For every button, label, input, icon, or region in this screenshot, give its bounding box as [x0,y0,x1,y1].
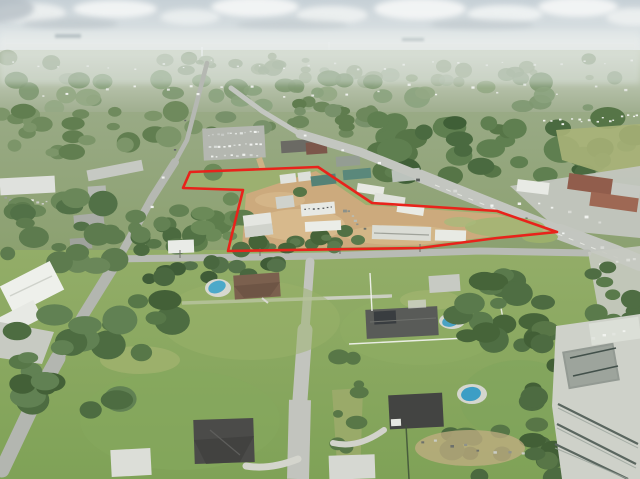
equipment-on-lot [354,220,357,222]
parked-cars [212,134,214,135]
rv-park [636,115,638,117]
tree-cluster [156,126,182,147]
trees-west-of-road [88,191,117,217]
commercial-building [336,155,361,167]
property-trees-west [223,192,239,205]
rv-park [633,116,635,117]
highway-cars [341,149,344,151]
distant-buildings [556,94,558,95]
garage-door [391,419,401,427]
equipment-on-lot [348,210,351,212]
trucks-east [518,203,521,206]
distant-tree-row [75,89,101,106]
hedge-row [153,267,175,286]
equipment-on-lot [352,215,354,217]
trucks-east [551,207,554,209]
equipment-on-lot [343,210,347,213]
yard-equipment [450,445,454,448]
forest-right [415,125,433,140]
yard-equipment [464,444,467,446]
trees-by-substation [526,418,549,432]
parked-cars [240,132,243,134]
trucks-east [568,211,572,214]
rv-park [562,123,565,125]
tree-cluster [117,138,134,153]
trees-west-of-road [19,226,49,248]
parked-cars [244,132,246,133]
road-cars [151,206,154,208]
cloud-shadow [430,19,534,31]
trees-west-of-road [82,258,110,274]
tree-belt-center-left [31,372,60,390]
tree-belt-center-left [131,344,152,361]
highway-cars [601,246,605,249]
equipment-yard [4,197,7,199]
parked-cars [223,146,225,148]
distant-city-silhouette [55,34,81,38]
shed [275,195,294,209]
rv-park [588,119,591,121]
trees-along-street [350,386,369,398]
parked-cars [221,134,224,136]
parked-cars [250,144,253,146]
distant-buildings [496,92,498,94]
highway-cars [416,179,420,182]
forest-right [443,116,466,130]
rv-park [581,121,583,122]
parked-cars [257,131,259,132]
trees-right-edge [605,289,620,300]
trees-near-property-west [125,210,146,224]
hedge-row [203,255,219,269]
patio [408,300,426,309]
rv-park [578,119,581,121]
parked-cars [259,143,262,145]
cloud-shadow [22,18,118,30]
tree [351,235,365,245]
parked-cars [224,155,226,157]
parked-cars [250,154,253,156]
trees-right-edge [599,262,616,274]
cloud [160,9,220,25]
tree-belt-right-center [456,329,479,342]
trees-west-of-road [51,243,66,251]
trailer-windows [309,208,310,209]
road-cars [184,120,186,121]
small-trailer-on-lot [435,229,466,241]
trees-along-street [333,410,343,418]
parked-cars [250,131,252,132]
parked-cars [211,156,213,158]
parked-cars [234,145,236,146]
tree [293,187,307,197]
trees-west-of-road [0,247,15,260]
yard-equipment [434,440,437,442]
tree-belt-center-left [128,294,148,308]
parked-cars [256,155,258,157]
rv-park [550,120,552,122]
highway-cars [490,205,493,207]
tree-cluster [108,107,121,117]
trailer-windows [331,207,332,208]
rv-park [612,120,614,121]
rv-park [559,119,562,121]
distant-buildings [471,86,474,88]
distant-buildings [311,95,314,97]
tree-cluster [11,104,36,119]
highway-cars [453,190,457,193]
equipment-on-lot [364,228,367,230]
tree-belt-center-left [148,290,181,310]
trailer-windows [304,209,306,210]
distant-buildings [190,85,193,87]
tree-belt-center-left [36,304,73,325]
substation-trucks [603,334,606,336]
rv-park [609,120,612,122]
tree-belt-center-left [3,322,32,340]
trees-by-substation [531,295,555,310]
equipment-on-lot [356,224,358,226]
distant-tree-row [19,82,39,100]
trees-right-edge [585,268,602,279]
metal-shed-bottom-center [329,454,376,479]
distant-tree-row [415,87,435,100]
rv-park [543,120,545,122]
tree-cluster [46,148,60,156]
rv-park [597,121,599,123]
parked-cars [216,156,218,157]
trees-near-property-west [153,217,170,232]
trees-right-edge [596,277,613,287]
distant-buildings [220,86,223,88]
tree-cluster [163,101,189,122]
distant-tree-row [373,89,392,103]
shed [298,171,312,182]
parked-cars [214,146,217,148]
road-cars [197,93,200,95]
parked-cars [255,143,258,145]
parked-cars [209,146,212,148]
white-house-west [168,240,194,254]
forest-right [481,116,498,130]
trucks-east [598,222,601,224]
trucks-right-edge [626,259,630,262]
substation-steel-frame [563,344,618,388]
substation-trucks [612,333,615,336]
equipment-yard [42,203,44,205]
tree-cluster [62,117,85,130]
rv-park [571,118,573,120]
parked-cars [235,133,237,135]
tree-cluster [144,111,162,121]
trees-by-substation [520,386,548,408]
parked-cars [245,143,247,144]
parked-cars [236,155,239,157]
trees-near-property-west [169,204,189,217]
property-tree-row-south [278,243,296,254]
trailer-windows [313,208,315,210]
distance-haze-overlay [0,50,640,84]
trees-by-substation [531,334,554,353]
distant-buildings [106,88,109,90]
yard-equipment [477,450,480,452]
hedge-row [267,259,286,272]
trucks-east [585,216,589,219]
substation-trucks [592,337,596,340]
parked-cars [217,133,220,135]
yard-equipment [421,441,424,443]
trailer-windows [327,207,329,208]
trucks-east [538,203,540,205]
trees-along-street [346,416,368,430]
yard-equipment [522,452,525,454]
equipment-yard [36,201,39,203]
warehouse-northwest [0,176,55,196]
parked-cars [242,154,245,156]
cloud-shadow [236,19,348,31]
tree-cluster [8,140,22,152]
forest-right [510,156,528,168]
yard-equipment [508,451,511,453]
tree-belt-center-left [68,316,102,334]
tree-belt-center-left [51,340,74,355]
tree-cluster [325,104,342,117]
trees-by-substation [524,448,545,461]
forest-right [367,111,389,128]
distant-tree-row [162,87,184,100]
residential-street [298,400,300,479]
distant-buildings [42,95,44,97]
mobile-home-on-lot [305,220,341,232]
tree-belt-right-center [469,272,500,290]
distant-buildings [345,94,348,96]
distant-city-silhouette [402,38,424,41]
yard-equipment [493,451,497,454]
parked-cars [230,133,232,134]
tree-belt-right-center [490,298,507,309]
rv-park [627,114,629,116]
tree-belt-right-center [454,293,485,314]
highway-cars [378,162,381,164]
property-trees-west [191,220,216,235]
substation-trucks [623,330,626,332]
tree-cluster [78,135,95,145]
tree-cluster [23,123,37,133]
parked-cars [231,154,233,156]
tree-belt-center-left [101,390,133,409]
tree-cluster [339,122,355,131]
distant-tree-row [583,104,594,111]
parked-cars [208,135,210,136]
tree-cluster [215,111,236,123]
trucks-right-edge [616,261,619,263]
trees-west-of-road [62,188,90,208]
forest-right [502,119,526,139]
parked-cars [239,144,241,146]
tree-belt-center-left [146,311,167,324]
forest-right [454,144,472,157]
distant-buildings [167,89,170,91]
distant-buildings [595,86,598,88]
solar-panels [374,310,397,324]
trees-near-property-west [131,227,151,243]
tree-cluster [107,123,120,130]
dirt-yard [415,430,525,466]
property-trees-west [191,207,214,220]
tree-belt-center-left [80,401,102,418]
distant-buildings [66,93,69,95]
tree-cluster [59,144,85,160]
distant-tree-row [534,87,555,103]
road-cars [174,149,176,151]
road-cars [162,177,165,179]
distant-buildings [435,94,437,96]
aerial-photo-canvas [0,0,640,479]
equipment-yard [46,201,48,202]
distant-buildings [377,91,379,93]
distant-tree-row [208,89,224,103]
trailer-windows [318,208,320,209]
trailer-windows [323,208,325,209]
trees-west-of-road [66,244,89,261]
parked-cars [227,132,230,134]
trees-west-of-road [16,218,35,229]
trucks-right-edge [633,258,636,260]
forest-right [468,158,495,175]
metal-shed-bottom-left [110,448,151,477]
property-tree-row-south [321,235,331,241]
tree-belt-center-left [102,306,137,335]
grass-patch-east [444,217,476,227]
highway-cars [304,135,307,137]
tree-belt-center-left [18,352,38,363]
highway-cars [562,233,564,235]
rv-park [621,116,623,118]
distant-buildings [624,89,627,91]
parked-cars [228,145,231,147]
trees-along-street [328,349,349,364]
trees-west-of-road [102,228,126,244]
cloud [73,0,157,18]
distant-tree-row [512,100,534,112]
parked-cars [254,131,257,133]
distant-buildings [251,86,254,88]
property-tree-row-south [327,241,341,254]
forest-right [476,139,505,158]
rv-park [602,117,604,118]
parked-cars [218,146,221,148]
tree-cluster [294,107,306,116]
distant-buildings [283,96,285,98]
distant-buildings [134,86,136,88]
aerial-photo [0,0,640,479]
trees-near-property-west [133,244,149,256]
detached-garage [428,274,460,293]
